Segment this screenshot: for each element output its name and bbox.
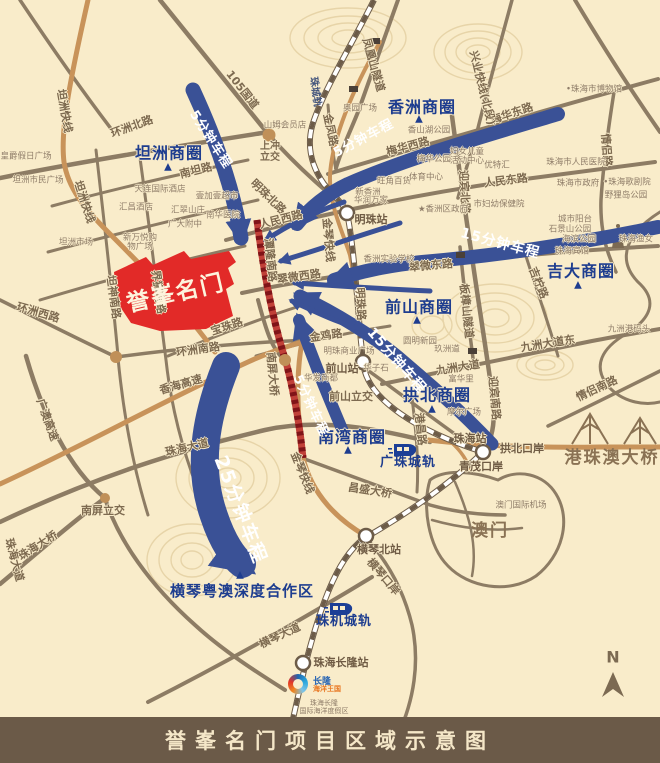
poi-label: 奥园广场 (343, 104, 377, 113)
poi-label: 壹加壹超市 (196, 192, 239, 201)
area-label: 澳门 (471, 522, 509, 540)
poi-label: 石景山公园 (549, 225, 592, 234)
poi-label: 皇爵假日广场 (0, 152, 51, 161)
train-icon (388, 441, 418, 459)
station-label: 横琴北站 (357, 544, 401, 556)
road-label: 明珠路 (353, 287, 367, 321)
district-marker-icon: ▲ (236, 571, 244, 582)
poi-label: 珠海市人民医院 (546, 158, 606, 167)
area-label: 港珠澳大桥 (565, 449, 660, 467)
poi-label: 珠海宾馆 (555, 247, 589, 256)
poi-label: 坦洲市场 (59, 238, 93, 247)
district-marker-icon: ▲ (413, 316, 421, 327)
poi-label: 广大附中 (168, 220, 202, 229)
station-label: 青茂口岸 (459, 461, 503, 473)
station-label: 明珠站 (355, 214, 388, 226)
map-canvas: 坦洲快线坦洲快线105国道环洲北路南坦路环洲西路坦神南路界狮南路环洲南路宝珠路香… (0, 0, 660, 763)
poi-label: 玖洲道 (434, 345, 460, 354)
station-label: 前山站 (326, 363, 359, 375)
road-label: 迎宾南路 (486, 376, 502, 421)
poi-label: 华润万家 (354, 196, 388, 205)
district-marker-icon: ▲ (415, 115, 423, 126)
bridge-icon (572, 414, 656, 444)
compass-label: N (606, 648, 619, 665)
poi-label: 体育中心 (409, 173, 443, 182)
poi-label: 海滨公园 (562, 235, 596, 244)
poi-label: 天连国际酒店 (134, 185, 185, 194)
chimelong-logo-icon (288, 674, 308, 694)
district-marker-icon: ▲ (428, 405, 436, 416)
road-label: 前山立交 (329, 391, 373, 403)
poi-label: 妇女儿童活动中心 (448, 148, 486, 166)
poi-label: 汇昌酒店 (119, 203, 153, 212)
road-label: 上冲立交 (258, 142, 282, 164)
poi-label: 华子石 (363, 364, 389, 373)
district-label: 坦洲商圈 (135, 144, 203, 161)
poi-label: 珠海市政府 (557, 179, 600, 188)
north-arrow-icon (602, 672, 624, 697)
district-label: 前山商圈 (385, 298, 453, 315)
district-label: 吉大商圈 (547, 262, 615, 279)
poi-label: 汇翠山庄 (171, 206, 205, 215)
poi-label: 城市阳台 (558, 215, 592, 224)
poi-label: 香山湖公园 (408, 126, 451, 135)
road-label: 金琴快线 (320, 218, 336, 263)
poi-label: 优特汇 (484, 161, 510, 170)
poi-label: 香洲实验学校 (363, 255, 414, 264)
poi-label: 富华里 (448, 375, 474, 384)
poi-label: 市妇幼保健院 (473, 200, 524, 209)
poi-label: 野狸岛公园 (605, 191, 648, 200)
poi-label: 坦洲市民广场 (12, 176, 63, 185)
road-label: 南屏大桥 (264, 352, 280, 397)
map-caption: 誉峯名门项目区域示意图 (0, 717, 660, 763)
train-icon (324, 600, 354, 618)
poi-label: 圆明新园 (403, 337, 437, 346)
poi-label: 南华医院 (206, 211, 240, 220)
poi-label: 九洲港码头 (608, 325, 651, 334)
poi-label: 明珠商业广场 (323, 347, 374, 356)
poi-label: 华发商都 (304, 374, 338, 383)
road-label: 南屏立交 (81, 505, 125, 517)
poi-label: 珠海渔女 (619, 235, 653, 244)
district-label: 横琴粤澳深度合作区 (170, 583, 314, 599)
poi-label: 梅华公园 (417, 155, 451, 164)
poi-label: 山姆会员店 (264, 121, 307, 130)
station-label: 珠海站 (454, 433, 487, 445)
station-label: 拱北口岸 (500, 443, 544, 455)
district-marker-icon: ▲ (574, 281, 582, 292)
district-marker-icon: ▲ (164, 163, 172, 174)
poi-label: 澳门国际机场 (495, 501, 546, 510)
poi-label: 新万悦购物广场 (121, 234, 159, 252)
poi-label: 旺角百货 (377, 177, 411, 186)
logo-line4: 国际海洋度假区 (288, 706, 360, 716)
station-label: 珠海长隆站 (314, 657, 369, 669)
poi-label: •珠海市博物馆 (566, 85, 622, 94)
poi-label: 摩尔广场 (447, 408, 481, 417)
district-marker-icon: ▲ (344, 446, 352, 457)
poi-label: •珠海歌剧院 (603, 178, 651, 187)
poi-label: ★香洲区政府 (418, 205, 468, 214)
logo-line2: 海洋王国 (313, 684, 341, 694)
